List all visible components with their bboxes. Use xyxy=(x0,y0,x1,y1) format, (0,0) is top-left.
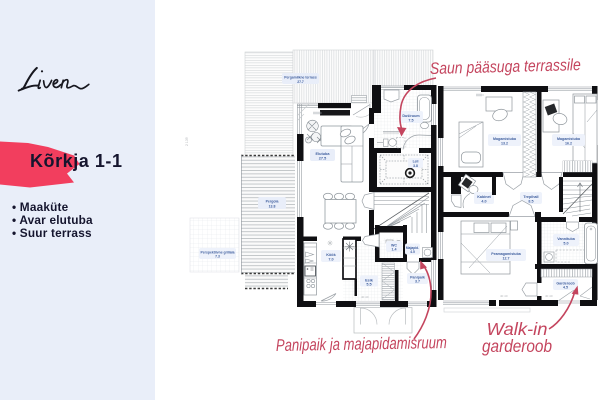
svg-text:• Suur terrass: • Suur terrass xyxy=(12,226,92,240)
svg-text:Elutuba: Elutuba xyxy=(316,152,331,156)
svg-text:3.8: 3.8 xyxy=(413,164,418,168)
svg-text:• Maaküte: • Maaküte xyxy=(12,200,69,214)
svg-text:4.0: 4.0 xyxy=(481,199,486,203)
svg-text:40 40: 40 40 xyxy=(500,294,508,298)
svg-text:4.5: 4.5 xyxy=(410,250,415,254)
svg-text:Trepihall: Trepihall xyxy=(523,195,538,199)
svg-text:4.5: 4.5 xyxy=(563,286,568,290)
svg-text:3.7: 3.7 xyxy=(415,280,420,284)
svg-text:Pergola: Pergola xyxy=(266,200,279,204)
svg-text:Kabinet: Kabinet xyxy=(477,195,491,199)
svg-text:Vannituba: Vannituba xyxy=(557,237,576,241)
svg-text:7.5: 7.5 xyxy=(408,118,413,122)
svg-text:8.5: 8.5 xyxy=(528,199,533,203)
svg-text:5.0: 5.0 xyxy=(563,241,568,245)
svg-text:40 40: 40 40 xyxy=(545,294,553,298)
svg-text:7.3: 7.3 xyxy=(215,255,220,259)
svg-text:5.5: 5.5 xyxy=(366,283,371,287)
svg-text:Kõrkja 1-1: Kõrkja 1-1 xyxy=(30,151,123,171)
svg-text:Magamistuba: Magamistuba xyxy=(493,137,517,141)
svg-text:27.7: 27.7 xyxy=(297,80,304,84)
svg-text:1.4: 1.4 xyxy=(392,248,397,252)
svg-text:13.8: 13.8 xyxy=(269,204,276,208)
svg-text:40 40: 40 40 xyxy=(361,295,369,299)
svg-text:27.5: 27.5 xyxy=(319,156,326,160)
svg-text:Köök: Köök xyxy=(326,253,336,257)
svg-text:Magamistuba: Magamistuba xyxy=(557,137,581,141)
svg-text:2 139: 2 139 xyxy=(185,137,189,146)
svg-text:13.2: 13.2 xyxy=(501,141,508,145)
svg-text:7.0: 7.0 xyxy=(328,257,333,261)
svg-text:• Avar elutuba: • Avar elutuba xyxy=(12,213,93,227)
svg-text:Duširuum: Duširuum xyxy=(402,114,420,118)
svg-text:12.7: 12.7 xyxy=(503,256,510,260)
svg-text:Peamagamistuba: Peamagamistuba xyxy=(491,252,522,256)
svg-text:garderoob: garderoob xyxy=(482,336,552,356)
svg-text:Panipaik ja majapidamisruum: Panipaik ja majapidamisruum xyxy=(276,333,447,355)
svg-text:16.2: 16.2 xyxy=(565,141,572,145)
